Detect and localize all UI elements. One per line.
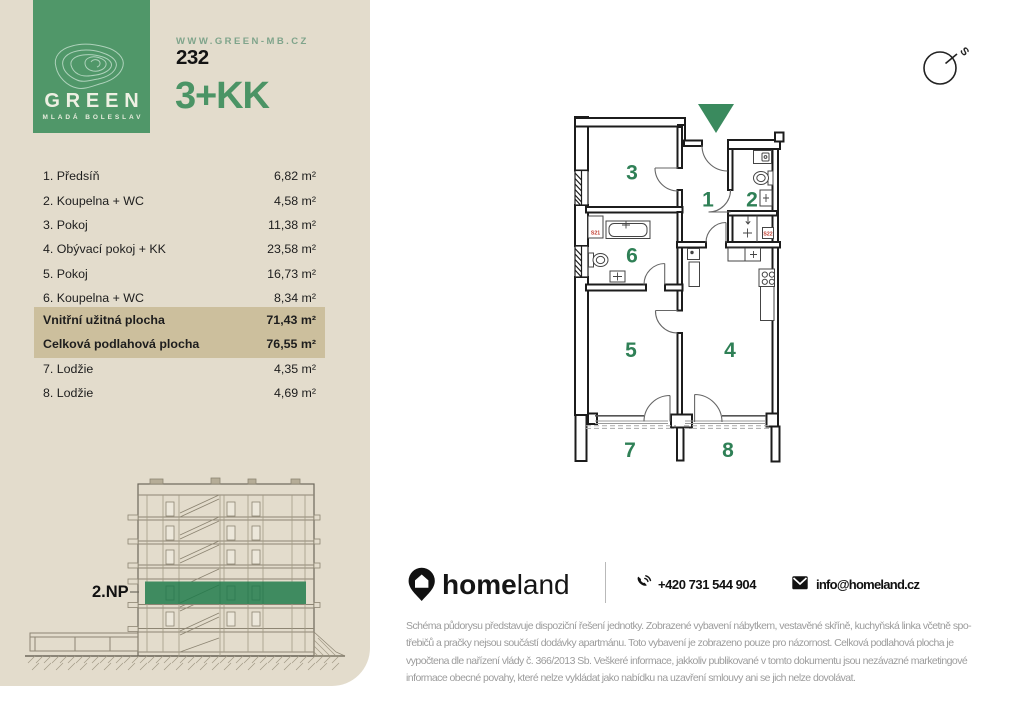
svg-text:4: 4 [724, 339, 736, 362]
svg-text:6: 6 [626, 245, 638, 268]
svg-text:5: 5 [625, 339, 637, 362]
svg-text:S: S [957, 45, 971, 58]
svg-text:3: 3 [626, 162, 638, 185]
svg-text:2: 2 [746, 189, 758, 212]
svg-text:1: 1 [702, 189, 714, 212]
svg-text:8: 8 [722, 439, 734, 462]
svg-text:7: 7 [624, 439, 636, 462]
svg-text:S21: S21 [591, 231, 600, 237]
svg-text:S22: S22 [763, 232, 772, 238]
